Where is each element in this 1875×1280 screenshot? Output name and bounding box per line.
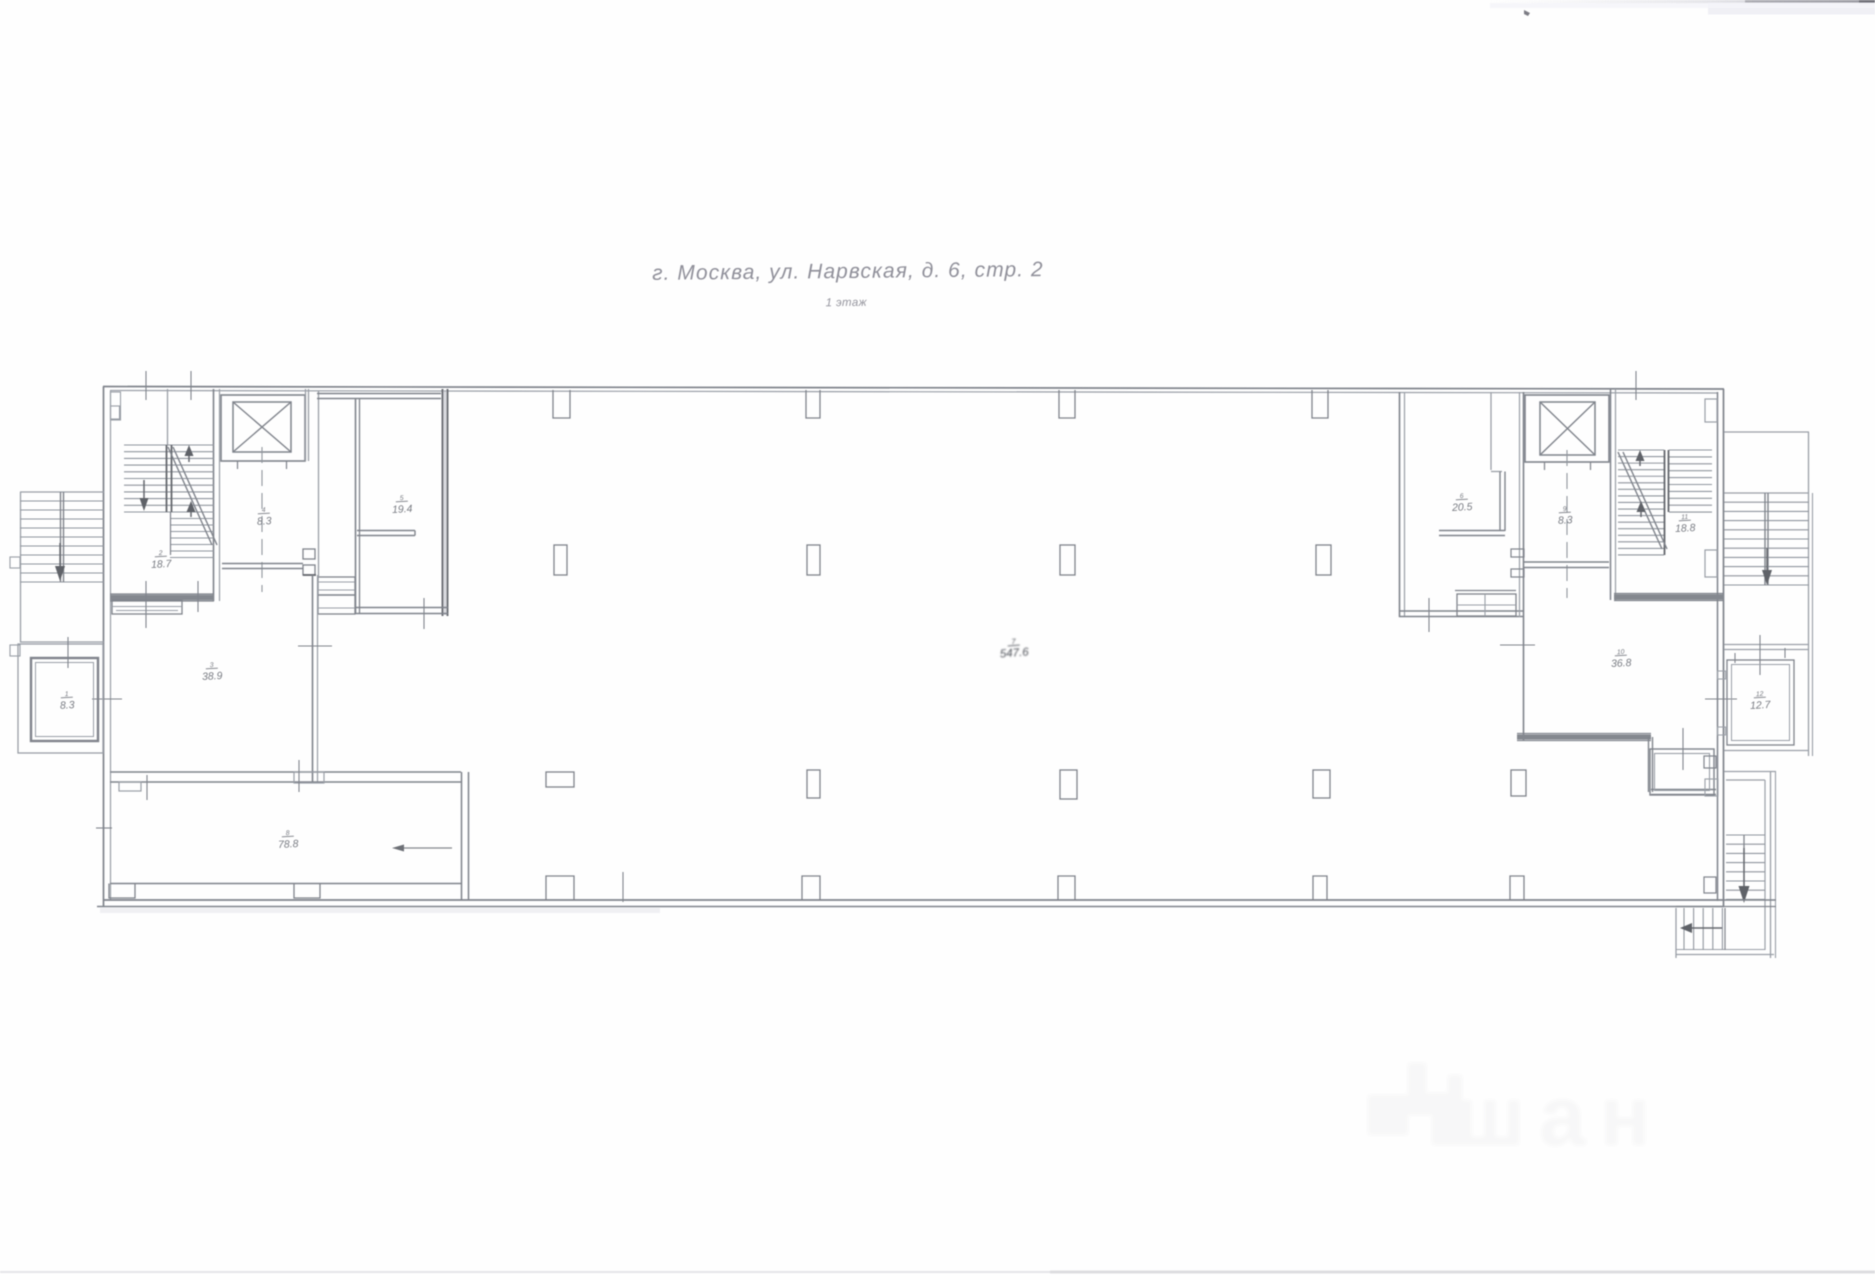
svg-text:7: 7 bbox=[1011, 637, 1017, 646]
svg-text:8.3: 8.3 bbox=[257, 515, 272, 528]
svg-text:18.8: 18.8 bbox=[1675, 522, 1696, 535]
svg-text:г. Москва, ул. Нарвская, д. 6,: г. Москва, ул. Нарвская, д. 6, стр. 2 bbox=[652, 258, 1044, 285]
svg-text:19.4: 19.4 bbox=[392, 503, 413, 516]
svg-text:38.9: 38.9 bbox=[202, 670, 223, 683]
svg-text:12.7: 12.7 bbox=[1750, 699, 1772, 712]
svg-text:547.6: 547.6 bbox=[1000, 646, 1030, 660]
svg-text:8.3: 8.3 bbox=[60, 699, 75, 712]
svg-text:18.7: 18.7 bbox=[151, 558, 173, 571]
svg-text:1 этаж: 1 этаж bbox=[825, 297, 867, 309]
svg-text:шан: шан bbox=[1455, 1069, 1664, 1163]
svg-text:78.8: 78.8 bbox=[278, 838, 299, 851]
svg-text:20.5: 20.5 bbox=[1451, 501, 1473, 514]
svg-text:36.8: 36.8 bbox=[1611, 657, 1632, 670]
svg-text:8.3: 8.3 bbox=[1558, 514, 1573, 527]
